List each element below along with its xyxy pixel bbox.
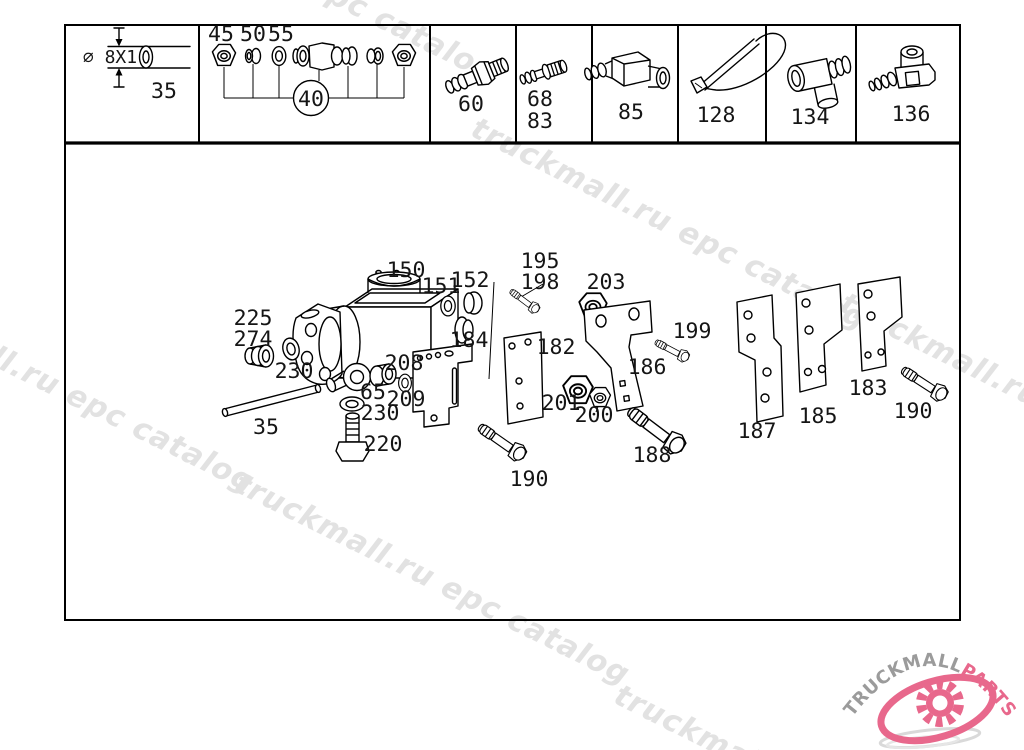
dimension-label: ⌀ 8X1 [83, 47, 137, 68]
header-cell-fitting-85: 85 [584, 52, 670, 125]
part-number-45: 45 [208, 22, 234, 47]
part-number-128: 128 [697, 103, 736, 128]
callout-208: 208 [385, 351, 424, 376]
header-cell-fitting-68-83: 68 83 [518, 58, 568, 134]
bracket-187 [737, 295, 783, 422]
header-cell-fitting-134: 134 [786, 54, 859, 130]
seal-151 [441, 296, 455, 316]
watermark-text: truckmall.ru epc catalog [95, 0, 502, 90]
group-number-40: 40 [298, 87, 324, 112]
callout-198: 198 [521, 270, 560, 295]
callout-185: 185 [799, 404, 838, 429]
callout-187: 187 [738, 419, 777, 444]
callout-186: 186 [628, 355, 667, 380]
brand-logo: TRUCKMALLPARTS [840, 650, 1021, 750]
callout-200: 200 [575, 403, 614, 428]
header-cell-fitting-136: 136 [868, 46, 935, 127]
part-number-83: 83 [527, 109, 553, 134]
part-number-60: 60 [458, 92, 484, 117]
bolt-190-lower [475, 418, 530, 464]
callout-274: 274 [234, 327, 273, 352]
callout-152: 152 [451, 268, 490, 293]
header-cell-cable-tie-128: 128 [691, 33, 785, 128]
seal-152 [464, 292, 482, 314]
callout-230-upper: 230 [275, 359, 314, 384]
callout-188: 188 [633, 443, 672, 468]
part-number-85: 85 [618, 100, 644, 125]
bracket-185 [796, 284, 842, 392]
exploded-view [222, 271, 951, 465]
callout-230-lower: 230 [361, 401, 400, 426]
part-number-35-header: 35 [151, 79, 177, 104]
callout-199: 199 [673, 319, 712, 344]
callout-182: 182 [537, 335, 576, 360]
part-number-134: 134 [791, 105, 830, 130]
callout-183: 183 [849, 376, 888, 401]
pipe-35 [222, 384, 322, 417]
callout-220: 220 [364, 432, 403, 457]
part-number-55: 55 [268, 22, 294, 47]
callout-35: 35 [253, 415, 279, 440]
callout-150: 150 [387, 258, 426, 283]
callout-203: 203 [587, 270, 626, 295]
callout-190-lower: 190 [510, 467, 549, 492]
part-number-50: 50 [240, 22, 266, 47]
callout-190-right: 190 [894, 399, 933, 424]
gear-icon [917, 680, 962, 725]
part-number-136: 136 [892, 102, 931, 127]
callout-184: 184 [450, 328, 489, 353]
watermark-text: truckmall.ru epc catalog [228, 466, 635, 692]
parts-diagram-canvas: truckmall.ru epc catalog truckmall.ru ep… [0, 0, 1024, 750]
header-cell-tube-35: ⌀ 8X1 35 [83, 28, 190, 104]
watermark-text: truckmall.ru epc catalog [0, 274, 260, 500]
